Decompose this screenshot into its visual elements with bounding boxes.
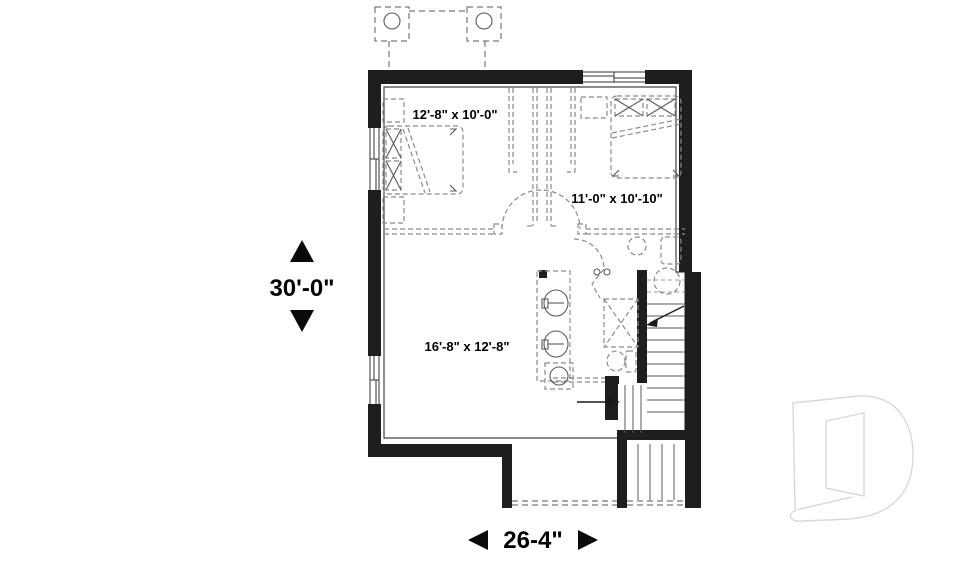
basement-walkout-edges	[512, 501, 685, 505]
exterior-walls	[368, 70, 701, 508]
bed	[611, 96, 681, 178]
floor-plan-page: 12'-8" x 10'-0" 11'-0" x 10'-10" 16'-8" …	[0, 0, 960, 569]
room-label-family-room: 16'-8" x 12'-8"	[424, 339, 509, 354]
room-label-bedroom2: 11'-0" x 10'-10"	[571, 191, 663, 206]
deck-post-icon	[476, 13, 492, 29]
dimension-vertical: 30'-0"	[269, 240, 334, 332]
bed	[383, 126, 463, 194]
arrow-down-icon	[290, 310, 314, 332]
stair-direction-arrows	[577, 306, 684, 407]
room-inner-outline	[384, 87, 685, 438]
floor-drain	[628, 237, 646, 255]
window-top	[583, 70, 645, 84]
nightstand	[581, 97, 607, 118]
interior-walls	[539, 270, 647, 420]
vanity	[537, 271, 570, 381]
dimension-vertical-value: 30'-0"	[269, 275, 334, 302]
deck-post-icon	[384, 13, 400, 29]
mech-unit	[661, 237, 681, 264]
arrow-up-icon	[290, 240, 314, 262]
floor-plan-drawing: 12'-8" x 10'-0" 11'-0" x 10'-10" 16'-8" …	[0, 0, 960, 569]
dimension-horizontal: 26-4"	[468, 527, 598, 554]
bathroom-doors	[574, 239, 610, 298]
stair-above-outline	[509, 88, 575, 226]
nightstand	[383, 197, 404, 223]
bathroom-fixtures	[537, 271, 638, 389]
arrow-left-icon	[468, 530, 488, 550]
window-left-lower	[368, 356, 381, 404]
arched-opening	[502, 190, 580, 229]
dimension-horizontal-value: 26-4"	[503, 527, 562, 554]
designer-logo	[790, 396, 913, 521]
deck-outline	[375, 7, 501, 70]
room-label-bedroom1: 12'-8" x 10'-0"	[412, 107, 497, 122]
window-left-upper	[368, 128, 381, 190]
toilet	[607, 351, 625, 371]
staircase	[625, 280, 685, 500]
arrow-right-icon	[578, 530, 598, 550]
mechanical-items	[628, 237, 681, 294]
bedroom2-furniture	[581, 96, 681, 178]
nightstand	[383, 99, 404, 122]
